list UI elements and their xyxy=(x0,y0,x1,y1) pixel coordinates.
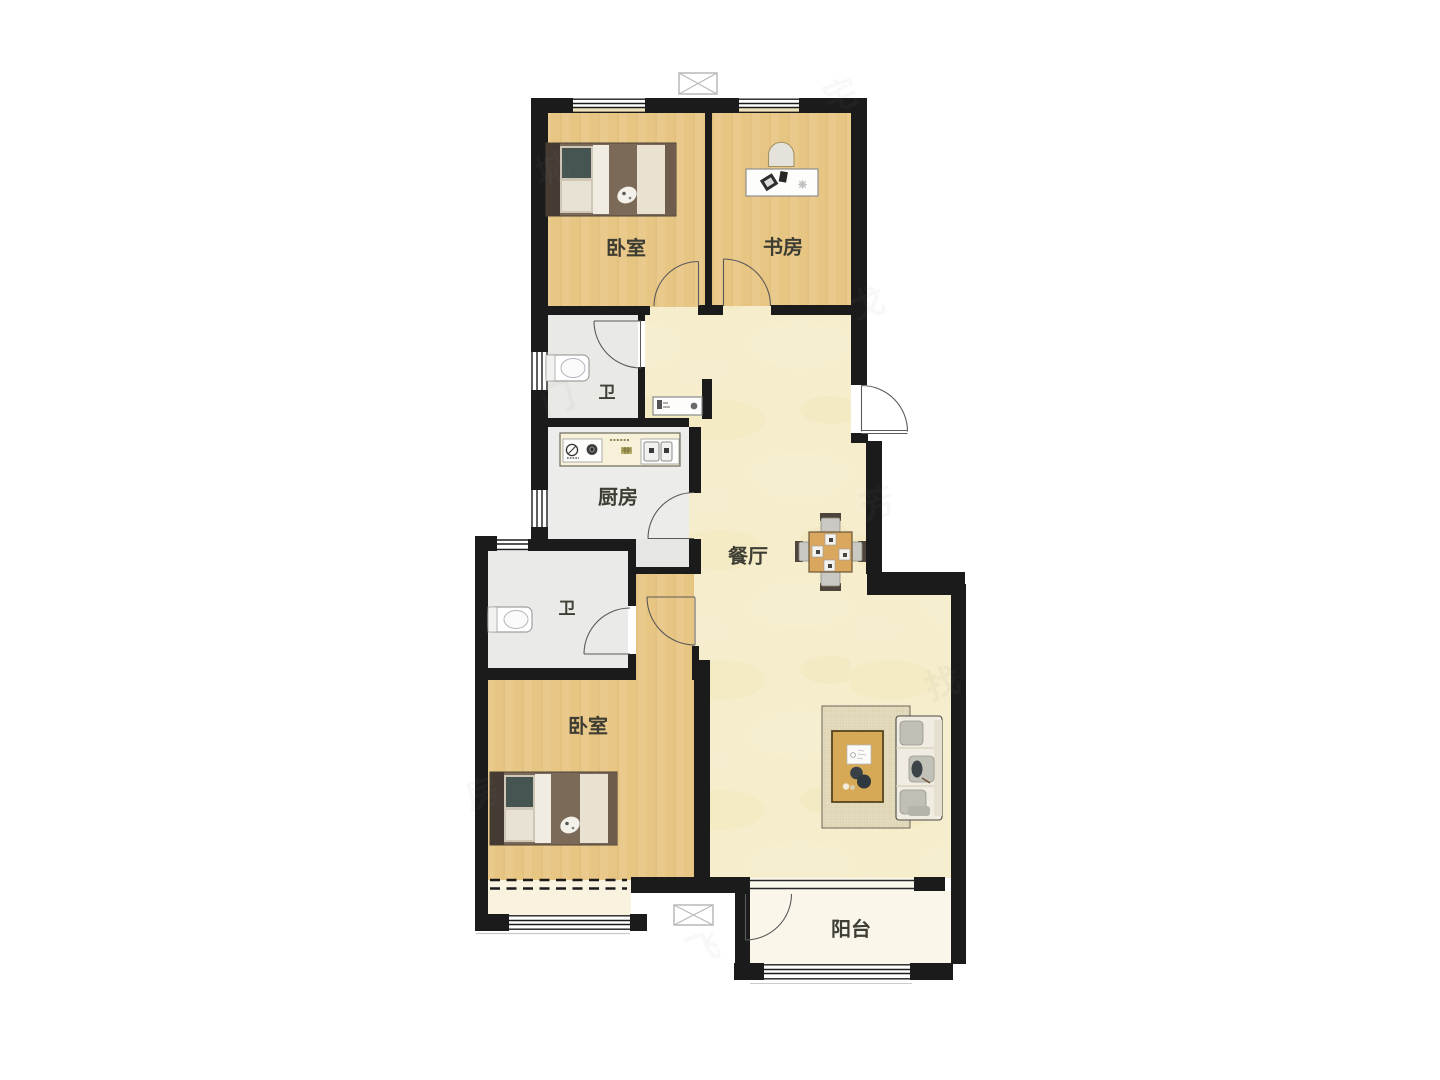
svg-text:餐厅: 餐厅 xyxy=(728,545,768,568)
svg-text:卫: 卫 xyxy=(599,383,616,402)
svg-text:卧室: 卧室 xyxy=(568,715,608,738)
svg-text:阳台: 阳台 xyxy=(831,918,871,941)
svg-text:厨房: 厨房 xyxy=(598,486,638,509)
svg-text:书房: 书房 xyxy=(763,236,803,259)
svg-text:卫: 卫 xyxy=(559,599,576,618)
svg-text:卧室: 卧室 xyxy=(606,237,646,260)
